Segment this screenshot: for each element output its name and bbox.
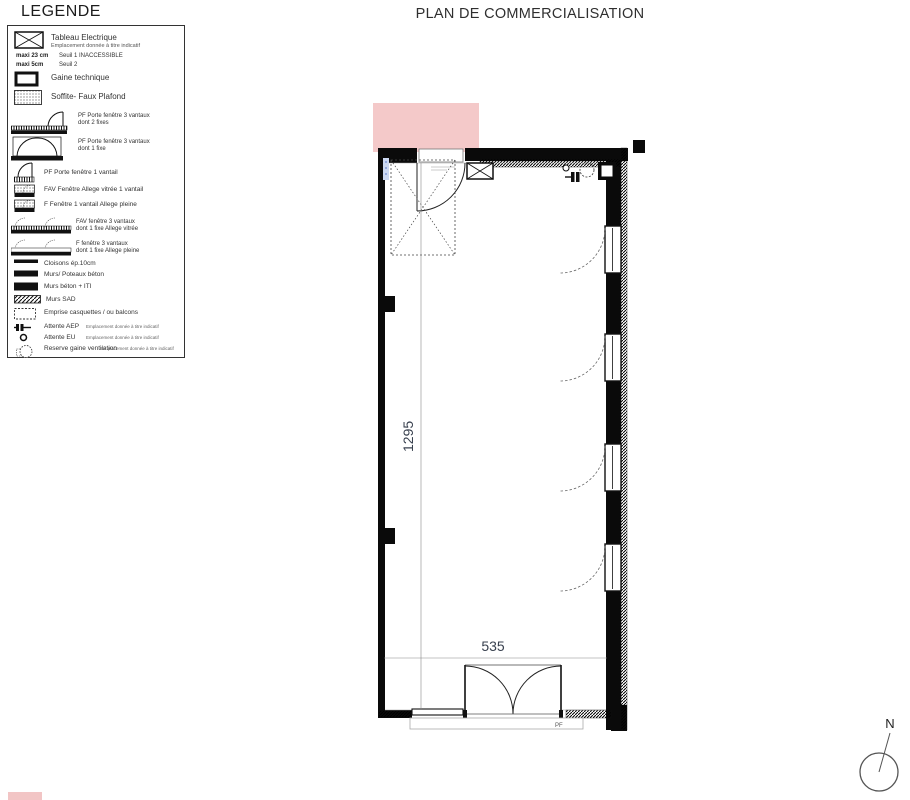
french-door-3-leaf-1-fixed-icon [11,136,63,162]
floor-plan-drawing: PF 1295 535 [365,100,655,745]
technical-duct [598,162,616,180]
legend-label: Emprise casquettes / ou balcons [44,309,138,316]
legend-seuil-2: Seuil 2 [59,62,77,68]
dim-vertical-label: 1295 [400,421,416,452]
floor-plan: PF 1295 535 [365,100,655,745]
bottom-double-door [463,665,563,718]
water-supply-icon [14,322,34,333]
legend-seuil-1: Seuil 1 INACCESSIBLE [59,53,123,59]
pilaster [378,296,395,312]
technical-duct-icon [14,71,40,87]
tiny-threshold-note [431,167,455,170]
legend-label: Gaine technique [51,73,109,82]
interior-face-lines [385,163,606,710]
legend-label: FAV Fenêtre Allege vitrée 1 vantail [44,186,143,193]
attente-aep-symbol [565,172,580,182]
window [560,334,621,381]
legend-label: Murs/ Poteaux béton [44,271,104,278]
legend-maxi-2: maxi 5cm [16,62,43,68]
window-1-leaf-icon [14,199,36,213]
legend-panel: Tableau Electrique Emplacement donnée à … [7,25,185,358]
legend-note: Emplacement donnée à titre indicatif [101,346,174,351]
legend-label: Soffite- Faux Plafond [51,92,126,101]
legend-label: Tableau Electrique [51,33,117,42]
legend-label: PF Porte fenêtre 1 vantail [44,169,118,176]
partition-wall-icon [14,259,40,264]
legend-note: Emplacement donnée à titre indicatif [86,335,159,340]
exterior-threshold: PF [410,718,583,729]
north-arrow-icon: N [846,710,910,800]
window [560,544,621,591]
electrical-panel-icon [14,31,44,49]
concrete-wall-icon [14,270,40,277]
legend-label: Cloisons ép.10cm [44,260,96,267]
legend-label: F fenêtre 3 vantauxdont 1 fixe Allege pl… [76,241,139,255]
dimensions: 1295 535 [384,163,607,710]
door-type-label: PF [555,723,563,729]
legend-label: Attente EU [44,334,75,341]
canopy-balcony-icon [14,308,38,320]
attente-eu-symbol [563,165,569,171]
legend-label: FAV fenêtre 3 vantauxdont 1 fixe Allege … [76,219,138,233]
dim-horizontal-label: 535 [481,638,505,654]
ventilation-reserve-icon [16,344,34,359]
concrete-iti-wall-icon [14,282,40,291]
pink-zone [373,103,479,152]
page-title: PLAN DE COMMERCIALISATION [400,6,660,22]
legend-maxi-1: maxi 23 cm [16,53,48,59]
legend-title: LEGENDE [21,3,101,21]
legend-label: Attente AEP [44,323,79,330]
electrical-panel [467,163,493,179]
pilaster [378,528,395,544]
sad-wall-icon [14,295,42,304]
legend-label: PF Porte fenêtre 3 vantauxdont 1 fixe [78,139,150,153]
window [560,444,621,491]
north-label: N [885,716,894,731]
blue-annotation-mark [383,158,389,180]
legend-label: Murs béton + ITI [44,283,92,290]
window [560,226,621,273]
legend-label: F Fenêtre 1 vantail Allege pleine [44,201,137,208]
glazed-window-3-leaf-icon [11,216,73,234]
north-compass: N [846,710,910,800]
legend-label: Murs SAD [46,296,76,303]
bottom-fixed-window [412,709,463,715]
legend-label: PF Porte fenêtre 3 vantauxdont 2 fixes [78,113,150,127]
pink-footer-bar [8,792,42,800]
french-door-1-leaf-icon [14,162,38,183]
wastewater-icon [19,333,29,343]
window-3-leaf-icon [11,238,73,256]
glazed-window-1-leaf-icon [14,184,36,198]
legend-sublabel: Emplacement donnée à titre indicatif [51,43,140,49]
legend-note: Emplacement donnée à titre indicatif [86,324,159,329]
dropped-ceiling-icon [14,90,42,106]
reserved-zone-dashed [391,160,455,255]
french-door-3-leaf-2-fixed-icon [11,110,69,136]
top-entrance-door [417,149,465,211]
wall-return [633,140,645,153]
